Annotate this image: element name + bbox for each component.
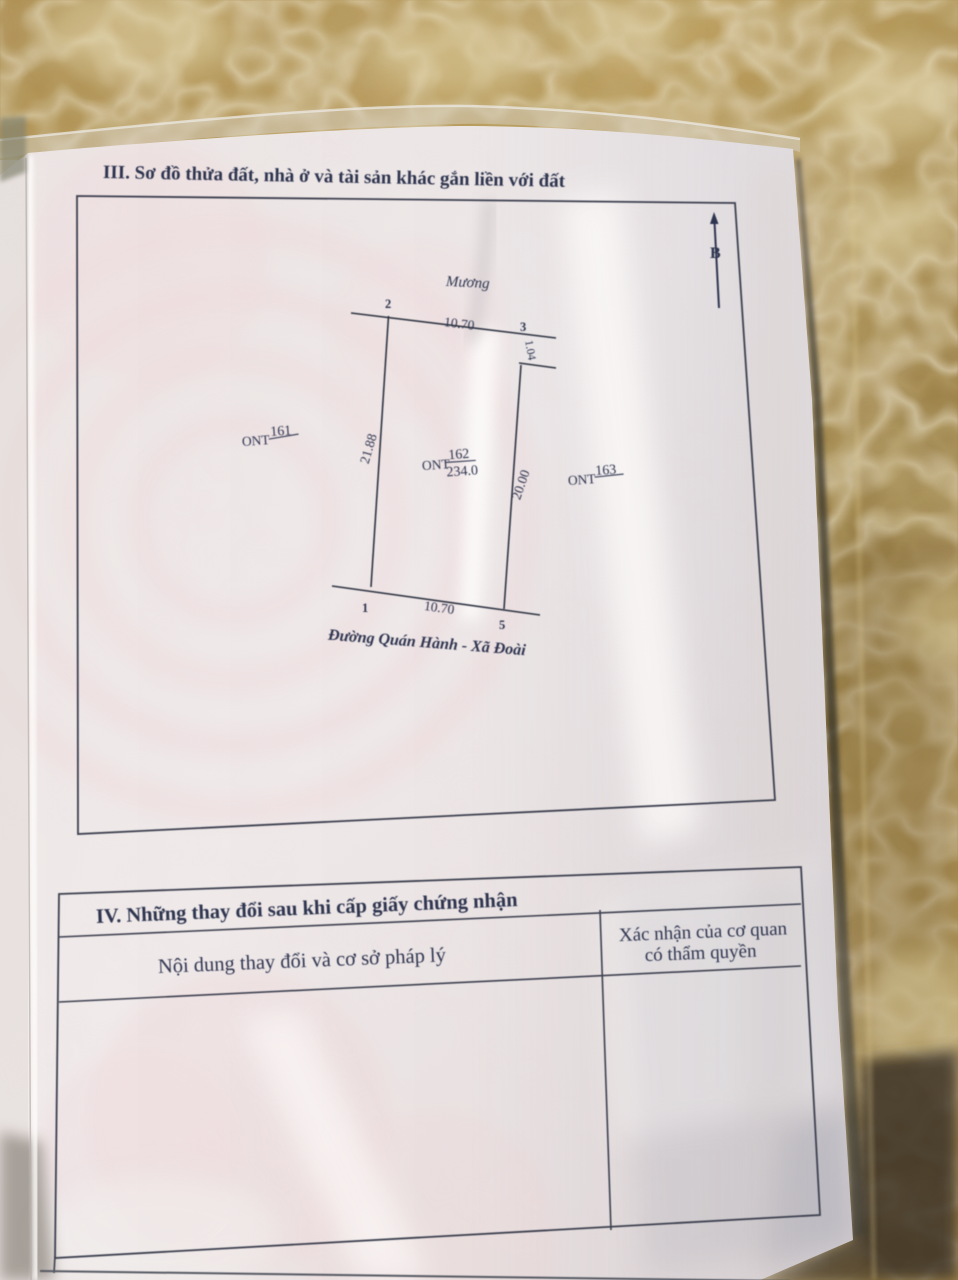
svg-text:ONT: ONT [241, 432, 270, 449]
svg-text:234.0: 234.0 [446, 463, 478, 480]
svg-text:B: B [710, 245, 721, 262]
svg-text:ONT: ONT [567, 471, 596, 488]
svg-text:5: 5 [499, 618, 505, 632]
svg-text:1: 1 [362, 601, 368, 615]
svg-text:3: 3 [520, 320, 526, 334]
svg-text:2: 2 [385, 297, 391, 311]
svg-text:Mương: Mương [445, 274, 491, 292]
